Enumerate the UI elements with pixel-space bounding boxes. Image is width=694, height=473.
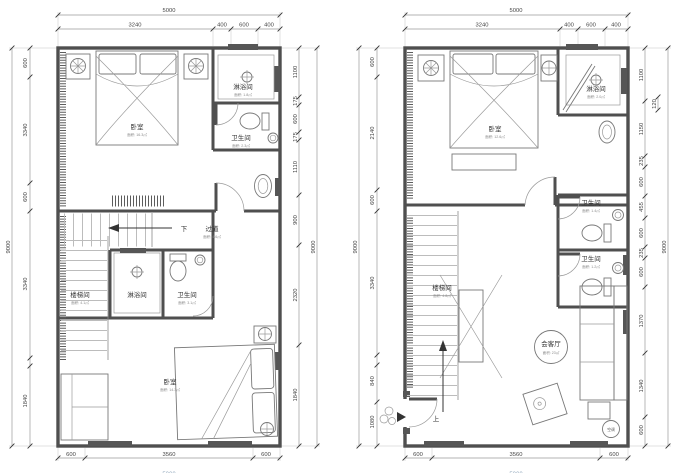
dim-right: 175: [293, 96, 299, 106]
dim-bottom: 600: [66, 452, 76, 458]
dim-left: 1080: [370, 416, 376, 429]
floor-plan-drawing: 5000 3240 400 600 400 600 3340 600 3340 …: [0, 0, 694, 473]
dim-bottom: 600: [261, 452, 271, 458]
dim-top: 400: [264, 23, 274, 29]
room-label-wc: 卫生间: [177, 290, 197, 299]
room-label-bedroom: 卧室: [489, 124, 503, 133]
dim-top: 400: [611, 23, 621, 29]
room-area: 面积: 3.1㎡: [178, 300, 196, 305]
room-area: 面积: 1.8㎡: [234, 92, 252, 97]
dim-left: 3340: [23, 278, 29, 291]
dim-right: 175: [293, 132, 299, 142]
room-label-shower: 淋浴间: [233, 82, 253, 91]
room-area: 面积: 2.3㎡: [232, 143, 250, 148]
dim-right: 600: [639, 177, 645, 187]
room-area: 面积: 23㎡: [543, 350, 560, 355]
dim-bottom: 600: [609, 452, 619, 458]
room-area: 面积: 4.8㎡: [433, 293, 451, 298]
room-label-corridor: 过道: [206, 224, 220, 233]
dim-right: 1100: [293, 66, 299, 78]
dim-left: 840: [370, 376, 376, 386]
dim-bottom: 600: [413, 452, 423, 458]
dim-left: 600: [370, 57, 376, 67]
ac-label: 空调: [607, 427, 615, 432]
nightstand-fan-icon: [261, 423, 274, 436]
dim-total-top: 5000: [163, 8, 176, 14]
room-label-living: 会客厅: [541, 339, 561, 348]
room-area: 面积: 12.6㎡: [485, 134, 505, 139]
dim-right: 235: [639, 156, 645, 166]
dim-right: 600: [639, 228, 645, 238]
stair-direction-down: 下: [181, 225, 188, 233]
dim-top: 600: [239, 23, 249, 29]
room-label-wc: 卫生间: [231, 133, 251, 142]
stair-direction-up: 上: [433, 414, 440, 423]
dim-right-total: 9000: [311, 241, 317, 254]
room-label-shower: 淋浴间: [127, 290, 147, 299]
room-area: 面积: 2.0㎡: [587, 94, 605, 99]
dim-total-top: 5000: [510, 8, 523, 14]
room-area: 面积: 4.1㎡: [71, 300, 89, 305]
room-label-bedroom: 卧室: [131, 122, 145, 131]
dim-right-small: 120: [652, 99, 658, 109]
dim-right: 1110: [293, 161, 299, 173]
dim-bottom: 3560: [163, 452, 176, 458]
dim-right: 600: [293, 114, 299, 124]
dim-right-total: 9000: [662, 241, 668, 254]
dim-left-total: 9000: [353, 241, 359, 254]
dim-left: 600: [23, 58, 29, 68]
dim-right: 1340: [639, 380, 645, 393]
room-label-wc: 卫生间: [581, 198, 601, 207]
dim-right: 455: [639, 202, 645, 212]
dim-right: 600: [639, 425, 645, 435]
room-area: 面积: 1.4㎡: [582, 208, 600, 213]
dim-top: 400: [564, 23, 574, 29]
room-label-stairwell: 楼梯间: [70, 290, 90, 299]
dim-top: 600: [586, 23, 596, 29]
dim-left: 1840: [23, 395, 29, 408]
dim-left: 2140: [370, 127, 376, 140]
dim-right: 1370: [639, 315, 645, 328]
dim-left: 3340: [23, 124, 29, 137]
room-label-wc: 卫生间: [581, 254, 601, 263]
floor-plan-canvas: 5000 3240 400 600 400 600 3340 600 3340 …: [0, 0, 694, 473]
room-label-bedroom: 卧室: [164, 377, 178, 386]
dim-top: 3240: [476, 23, 489, 29]
room-area: 面积: 14.3㎡: [160, 387, 180, 392]
dim-right: 1100: [639, 69, 645, 81]
dim-left: 600: [23, 192, 29, 202]
room-area: 面积: 16.3㎡: [127, 132, 147, 137]
dim-right: 600: [639, 267, 645, 277]
room-label-stairwell: 楼梯间: [432, 283, 452, 292]
dim-right: 2320: [293, 289, 299, 302]
dim-left-total: 9000: [6, 241, 12, 254]
dim-top: 400: [217, 23, 227, 29]
dim-right: 235: [639, 248, 645, 258]
dim-right: 1150: [639, 123, 645, 135]
dim-left: 600: [370, 195, 376, 205]
room-label-shower: 淋浴间: [586, 84, 606, 93]
plan-right: 5000 3240 400 600 400 600 2140 600 3340 …: [353, 8, 671, 473]
plan-left: 5000 3240 400 600 400 600 3340 600 3340 …: [6, 8, 320, 473]
dim-bottom: 3560: [510, 452, 523, 458]
dim-left: 3340: [370, 277, 376, 290]
dim-top: 3240: [129, 23, 142, 29]
dim-right: 900: [293, 215, 299, 225]
room-area: 面积: 1.2㎡: [582, 264, 600, 269]
dim-right: 1840: [293, 389, 299, 402]
room-area: 面积: 4.6㎡: [203, 234, 221, 239]
